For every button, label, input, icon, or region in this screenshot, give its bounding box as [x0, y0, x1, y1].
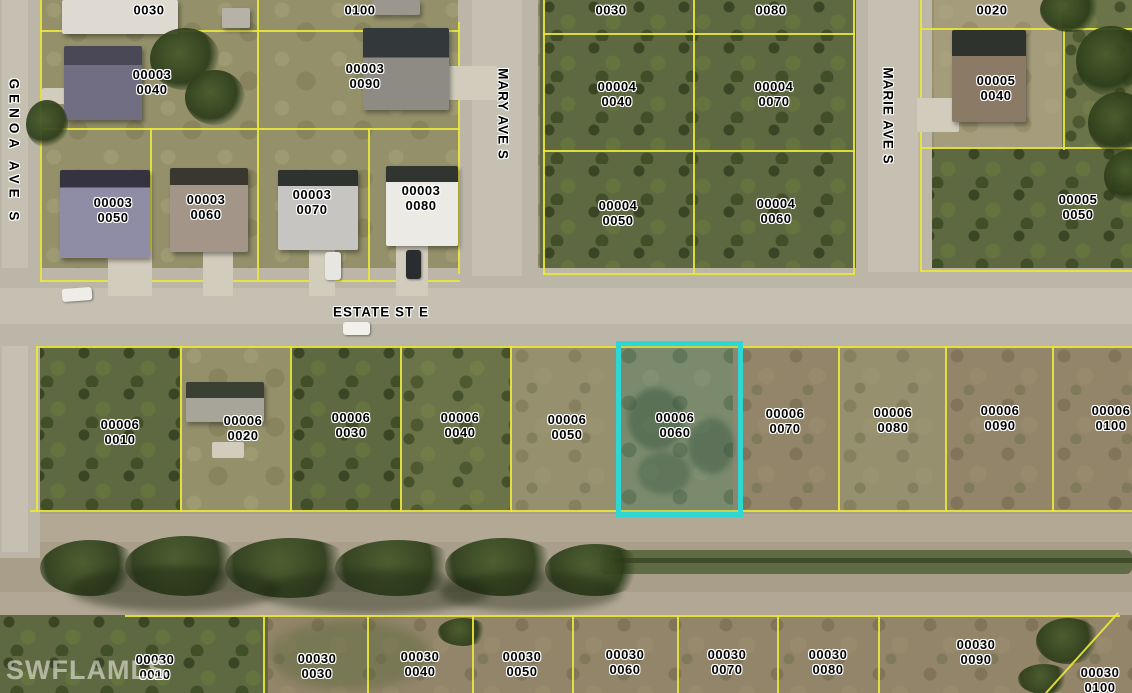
- parcel-label-00006-0090: 00006 0090: [981, 403, 1020, 433]
- parcel-label-00006-0080: 00006 0080: [874, 405, 913, 435]
- house-00003-0040: [64, 46, 142, 120]
- parcel-label-00006-0060: 00006 0060: [656, 410, 695, 440]
- parcel-line: [1063, 28, 1065, 150]
- parcel-line: [543, 150, 855, 152]
- tree: [26, 100, 68, 148]
- driveway: [447, 66, 497, 100]
- parcel-label-00030-0050: 00030 0050: [503, 649, 542, 679]
- parcel-line: [36, 346, 38, 512]
- parcel-label-00004-0050: 00004 0050: [599, 198, 638, 228]
- hedge-shadow: [70, 566, 280, 612]
- parcel-label-0020: 0020: [977, 2, 1008, 17]
- parcel-label-00030-0100: 00030 0100: [1081, 665, 1120, 693]
- car-white: [325, 252, 341, 280]
- parcel-line: [543, 33, 855, 35]
- parcel-line: [920, 270, 1132, 272]
- parcel-line: [36, 346, 1132, 348]
- parcel-line: [677, 615, 679, 693]
- parcel-line: [368, 128, 370, 282]
- parcel-label-00004-0070: 00004 0070: [755, 79, 794, 109]
- street-label-genoa-ave-s: GENOA AVE S: [7, 79, 22, 226]
- shed-roof: [222, 8, 250, 28]
- road-estate-pavement: [0, 288, 1132, 324]
- parcel-label-00030-0070: 00030 0070: [708, 647, 747, 677]
- aerial-parcel-map: 0030010000300080002000003 004000003 0090…: [0, 0, 1132, 693]
- parcel-line: [853, 0, 855, 275]
- parcel-line: [180, 346, 182, 512]
- house-roof-partial: [372, 0, 420, 15]
- parcel-label-0030: 0030: [134, 2, 165, 17]
- parcel-label-00006-0030: 00006 0030: [332, 410, 371, 440]
- parcel-label-0100: 0100: [345, 2, 376, 17]
- parcel-line: [400, 346, 402, 512]
- truck-white: [343, 322, 370, 335]
- parcel-label-00004-0040: 00004 0040: [598, 79, 637, 109]
- parcel-label-00006-0100: 00006 0100: [1092, 403, 1131, 433]
- parcel-label-00006-0010: 00006 0010: [101, 417, 140, 447]
- canal-channel-line: [610, 558, 1132, 563]
- parcel-line: [40, 128, 460, 130]
- mls-watermark: SWFLAMLS: [6, 655, 167, 686]
- driveway: [203, 246, 233, 296]
- parcel-label-0080: 0080: [756, 2, 787, 17]
- parcel-label-00004-0060: 00004 0060: [757, 196, 796, 226]
- parcel-line: [30, 510, 1132, 512]
- parcel-line: [472, 615, 474, 693]
- tree: [185, 70, 245, 125]
- parcel-line: [125, 615, 1120, 617]
- hedge-shadow: [440, 572, 620, 612]
- parcel-line: [1052, 346, 1054, 512]
- parcel-label-00003-0090: 00003 0090: [346, 61, 385, 91]
- parcel-line: [263, 615, 265, 693]
- parcel-label-00006-0020: 00006 0020: [224, 413, 263, 443]
- car-white: [62, 287, 93, 302]
- parcel-line: [458, 22, 460, 274]
- street-label-marie-ave-s: MARIE AVE S: [881, 67, 896, 164]
- parcel-label-00003-0060: 00003 0060: [187, 192, 226, 222]
- parcel-00005-0050-woods: [920, 147, 1132, 271]
- parcel-label-00006-0070: 00006 0070: [766, 406, 805, 436]
- parcel-label-00003-0050: 00003 0050: [94, 195, 133, 225]
- car-dark: [406, 250, 421, 279]
- parcel-line: [878, 615, 880, 693]
- parcel-line: [257, 0, 259, 280]
- parcel-line: [543, 0, 545, 275]
- parcel-label-0030: 0030: [596, 2, 627, 17]
- parcel-label-00003-0080: 00003 0080: [402, 183, 441, 213]
- south-tree: [438, 618, 488, 646]
- parcel-line: [920, 0, 922, 272]
- parcel-label-00030-0090: 00030 0090: [957, 637, 996, 667]
- street-label-mary-ave-s: MARY AVE S: [496, 68, 511, 160]
- parcel-line: [945, 346, 947, 512]
- parcel-label-00030-0030: 00030 0030: [298, 651, 337, 681]
- parcel-label-00006-0040: 00006 0040: [441, 410, 480, 440]
- patio-pad: [212, 442, 244, 458]
- parcel-label-00030-0060: 00030 0060: [606, 647, 645, 677]
- street-label-estate-st-e: ESTATE ST E: [333, 305, 429, 320]
- parcel-label-00003-0040: 00003 0040: [133, 67, 172, 97]
- parcel-label-00003-0070: 00003 0070: [293, 187, 332, 217]
- parcel-line: [777, 615, 779, 693]
- parcel-label-00005-0050: 00005 0050: [1059, 192, 1098, 222]
- parcel-label-00030-0040: 00030 0040: [401, 649, 440, 679]
- parcel-line: [510, 346, 512, 512]
- parcel-line: [693, 0, 695, 275]
- parcel-label-00030-0080: 00030 0080: [809, 647, 848, 677]
- parcel-label-00006-0050: 00006 0050: [548, 412, 587, 442]
- parcel-label-00005-0040: 00005 0040: [977, 73, 1016, 103]
- parcel-line: [543, 273, 855, 275]
- south-tree: [1018, 664, 1070, 693]
- parcel-line: [290, 346, 292, 512]
- parcel-line: [367, 615, 369, 693]
- block-north-middle-woods: [540, 0, 856, 276]
- parcel-line: [838, 346, 840, 512]
- parcel-line: [572, 615, 574, 693]
